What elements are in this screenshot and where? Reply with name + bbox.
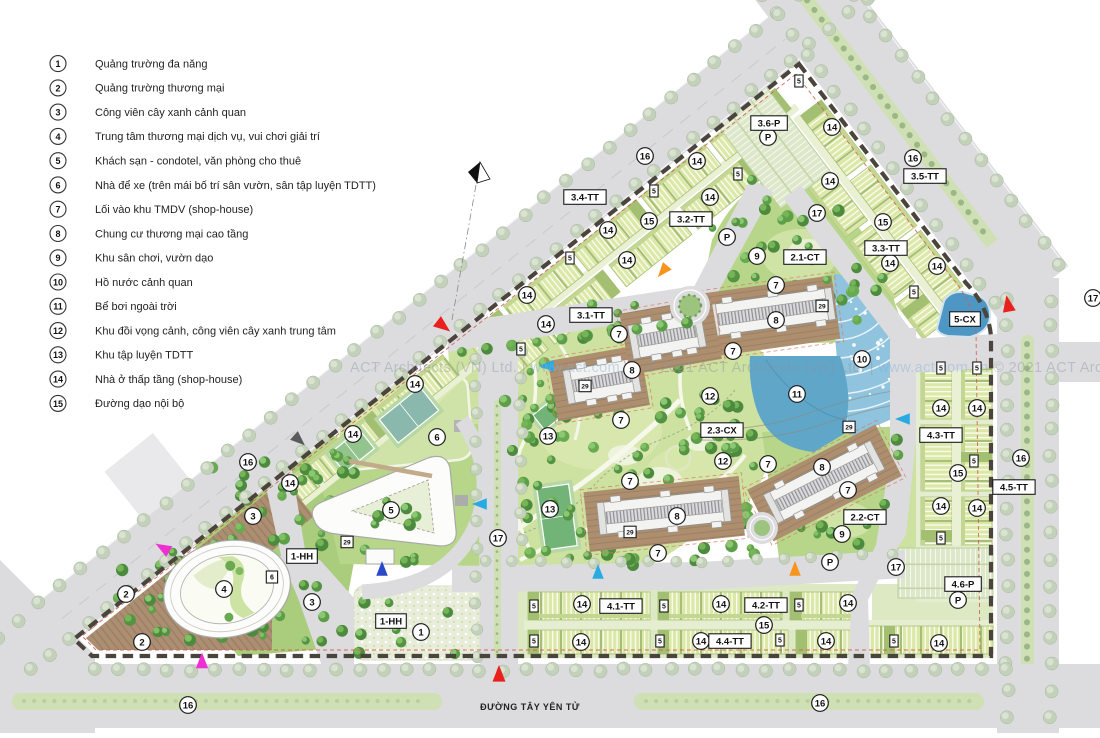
svg-text:Khu sân chơi, vườn dạo: Khu sân chơi, vườn dạo: [95, 253, 213, 265]
svg-text:17: 17: [1088, 293, 1099, 304]
svg-text:15: 15: [644, 216, 655, 227]
svg-text:14: 14: [716, 599, 727, 610]
svg-text:Quảng trường đa năng: Quảng trường đa năng: [95, 58, 207, 70]
svg-text:6: 6: [434, 432, 439, 443]
svg-text:14: 14: [603, 225, 614, 236]
svg-text:9: 9: [839, 529, 844, 540]
svg-text:16: 16: [183, 700, 194, 711]
svg-text:P: P: [724, 232, 731, 243]
svg-text:3.3-TT: 3.3-TT: [872, 243, 900, 254]
svg-text:7: 7: [655, 548, 660, 559]
svg-text:15: 15: [759, 620, 770, 631]
svg-text:7: 7: [618, 415, 623, 426]
svg-text:14: 14: [285, 478, 296, 489]
svg-text:11: 11: [792, 389, 803, 400]
svg-text:5: 5: [939, 366, 943, 373]
svg-text:14: 14: [934, 638, 945, 649]
svg-text:3.4-TT: 3.4-TT: [571, 192, 599, 203]
svg-text:29: 29: [845, 424, 853, 431]
svg-text:29: 29: [626, 529, 634, 536]
svg-text:8: 8: [819, 462, 824, 473]
svg-text:ĐƯỜNG TÂY YÊN TỬ: ĐƯỜNG TÂY YÊN TỬ: [480, 701, 580, 712]
svg-text:4.2-TT: 4.2-TT: [752, 600, 780, 611]
svg-text:2: 2: [123, 589, 128, 600]
svg-text:5: 5: [532, 639, 536, 646]
svg-text:2.1-CT: 2.1-CT: [790, 252, 819, 263]
svg-text:3.1-TT: 3.1-TT: [577, 310, 605, 321]
svg-text:17: 17: [891, 562, 902, 573]
svg-text:10: 10: [857, 354, 868, 365]
svg-text:14: 14: [692, 156, 703, 167]
svg-text:14: 14: [53, 375, 63, 385]
svg-text:Công viên cây xanh cảnh quan: Công viên cây xanh cảnh quan: [95, 107, 246, 119]
svg-text:5: 5: [388, 505, 394, 516]
svg-text:Nhà ở thấp tầng (shop-house): Nhà ở thấp tầng (shop-house): [95, 374, 242, 386]
svg-text:16: 16: [815, 698, 826, 709]
svg-text:14: 14: [576, 637, 587, 648]
svg-text:2.2-CT: 2.2-CT: [850, 512, 879, 523]
svg-text:8: 8: [629, 365, 634, 376]
svg-text:Đường dạo nội bộ: Đường dạo nội bộ: [95, 398, 184, 410]
svg-text:5: 5: [778, 638, 782, 645]
svg-text:1: 1: [418, 627, 424, 638]
svg-text:Khu đồi vọng cảnh, công viên c: Khu đồi vọng cảnh, công viên cây xanh tr…: [95, 325, 336, 337]
svg-text:1-HH: 1-HH: [291, 551, 313, 562]
svg-text:14: 14: [936, 403, 947, 414]
svg-text:14: 14: [522, 290, 533, 301]
svg-text:14: 14: [705, 192, 716, 203]
svg-text:11: 11: [53, 302, 63, 312]
svg-text:3: 3: [55, 108, 60, 118]
svg-text:5: 5: [912, 290, 916, 297]
svg-text:Hồ nước cảnh quan: Hồ nước cảnh quan: [95, 277, 193, 289]
svg-text:14: 14: [936, 501, 947, 512]
svg-text:4.3-TT: 4.3-TT: [927, 430, 955, 441]
svg-text:5: 5: [652, 189, 656, 196]
svg-text:ACT Architects (VN) Ltd. | w: ACT Architects (VN) Ltd. | www.act.com.v…: [350, 360, 1100, 376]
svg-text:29: 29: [581, 383, 589, 390]
svg-text:3.5-TT: 3.5-TT: [911, 171, 939, 182]
svg-text:12: 12: [53, 326, 63, 336]
svg-text:8: 8: [773, 315, 778, 326]
svg-text:4.1-TT: 4.1-TT: [607, 601, 635, 612]
svg-text:3: 3: [250, 511, 255, 522]
svg-text:14: 14: [348, 429, 359, 440]
svg-text:7: 7: [627, 476, 632, 487]
svg-text:5: 5: [658, 639, 662, 646]
svg-text:14: 14: [825, 176, 836, 187]
svg-text:4.5-TT: 4.5-TT: [1000, 482, 1028, 493]
svg-text:13: 13: [545, 504, 556, 515]
svg-text:14: 14: [827, 122, 838, 133]
svg-text:5: 5: [736, 172, 740, 179]
svg-text:5: 5: [975, 366, 979, 373]
svg-text:4: 4: [221, 584, 227, 595]
svg-text:4.6-P: 4.6-P: [952, 579, 975, 590]
svg-text:6: 6: [270, 575, 274, 582]
svg-text:5: 5: [519, 347, 523, 354]
svg-text:Bể bơi ngoài trời: Bể bơi ngoài trời: [95, 301, 177, 313]
svg-text:Khách sạn - condotel, văn phòn: Khách sạn - condotel, văn phòng cho thuê: [95, 156, 301, 168]
svg-text:5: 5: [939, 536, 943, 543]
svg-text:10: 10: [53, 277, 63, 287]
svg-text:16: 16: [640, 151, 651, 162]
svg-text:5: 5: [662, 604, 666, 611]
svg-text:15: 15: [878, 217, 889, 228]
svg-text:7: 7: [616, 329, 621, 340]
svg-text:2.3-CX: 2.3-CX: [707, 425, 737, 436]
svg-text:15: 15: [53, 399, 63, 409]
svg-text:5: 5: [797, 603, 801, 610]
svg-text:9: 9: [754, 251, 759, 262]
svg-text:7: 7: [730, 346, 735, 357]
svg-text:14: 14: [541, 319, 552, 330]
svg-text:5: 5: [972, 459, 976, 466]
svg-text:1: 1: [55, 59, 60, 69]
svg-text:1-HH: 1-HH: [380, 616, 402, 627]
svg-text:14: 14: [622, 255, 633, 266]
svg-text:9: 9: [55, 253, 60, 263]
svg-text:7: 7: [55, 205, 60, 215]
svg-text:P: P: [955, 595, 962, 606]
svg-text:12: 12: [718, 456, 729, 467]
svg-text:16: 16: [243, 457, 254, 468]
svg-text:Khu tập luyện TDTT: Khu tập luyện TDTT: [95, 350, 194, 362]
svg-text:7: 7: [845, 485, 850, 496]
svg-text:29: 29: [343, 539, 351, 546]
svg-text:15: 15: [953, 468, 964, 479]
svg-text:29: 29: [818, 303, 826, 310]
svg-text:14: 14: [885, 258, 896, 269]
svg-text:5: 5: [55, 156, 60, 166]
svg-text:17: 17: [812, 208, 823, 219]
svg-text:14: 14: [821, 636, 832, 647]
svg-text:Chung cư thương mại cao tầng: Chung cư thương mại cao tầng: [95, 228, 248, 240]
svg-text:14: 14: [972, 403, 983, 414]
svg-text:13: 13: [53, 350, 63, 360]
svg-text:2: 2: [139, 637, 144, 648]
svg-text:Nhà để xe (trên mái bố trí sân: Nhà để xe (trên mái bố trí sân vườn, sân…: [95, 180, 376, 192]
svg-text:4: 4: [55, 132, 60, 142]
svg-text:5-CX: 5-CX: [954, 314, 976, 325]
svg-text:12: 12: [705, 391, 716, 402]
svg-text:14: 14: [843, 598, 854, 609]
svg-text:3: 3: [309, 597, 314, 608]
svg-text:8: 8: [674, 511, 679, 522]
svg-text:5: 5: [892, 639, 896, 646]
svg-text:14: 14: [410, 379, 421, 390]
svg-text:5: 5: [568, 256, 572, 263]
svg-text:P: P: [827, 557, 834, 568]
svg-text:5: 5: [532, 604, 536, 611]
svg-text:5: 5: [797, 79, 801, 86]
svg-text:13: 13: [543, 431, 554, 442]
svg-text:16: 16: [1016, 453, 1027, 464]
svg-text:Quảng trường thương mại: Quảng trường thương mại: [95, 83, 224, 95]
svg-text:3.2-TT: 3.2-TT: [677, 214, 705, 225]
svg-text:2: 2: [55, 83, 60, 93]
svg-text:7: 7: [765, 459, 770, 470]
svg-text:P: P: [765, 132, 772, 143]
svg-text:16: 16: [908, 153, 919, 164]
svg-text:7: 7: [773, 280, 778, 291]
svg-text:Trung tâm thương mại dịch vụ,: Trung tâm thương mại dịch vụ, vui chơi g…: [95, 131, 320, 143]
svg-text:Lối vào khu TMDV (shop-house): Lối vào khu TMDV (shop-house): [95, 204, 253, 216]
svg-text:17: 17: [493, 533, 504, 544]
svg-text:8: 8: [55, 229, 60, 239]
svg-text:14: 14: [696, 636, 707, 647]
svg-text:14: 14: [972, 503, 983, 514]
svg-text:3.6-P: 3.6-P: [758, 118, 781, 129]
svg-text:4.4-TT: 4.4-TT: [716, 636, 744, 647]
svg-text:14: 14: [577, 599, 588, 610]
svg-text:14: 14: [932, 261, 943, 272]
svg-text:6: 6: [55, 180, 60, 190]
